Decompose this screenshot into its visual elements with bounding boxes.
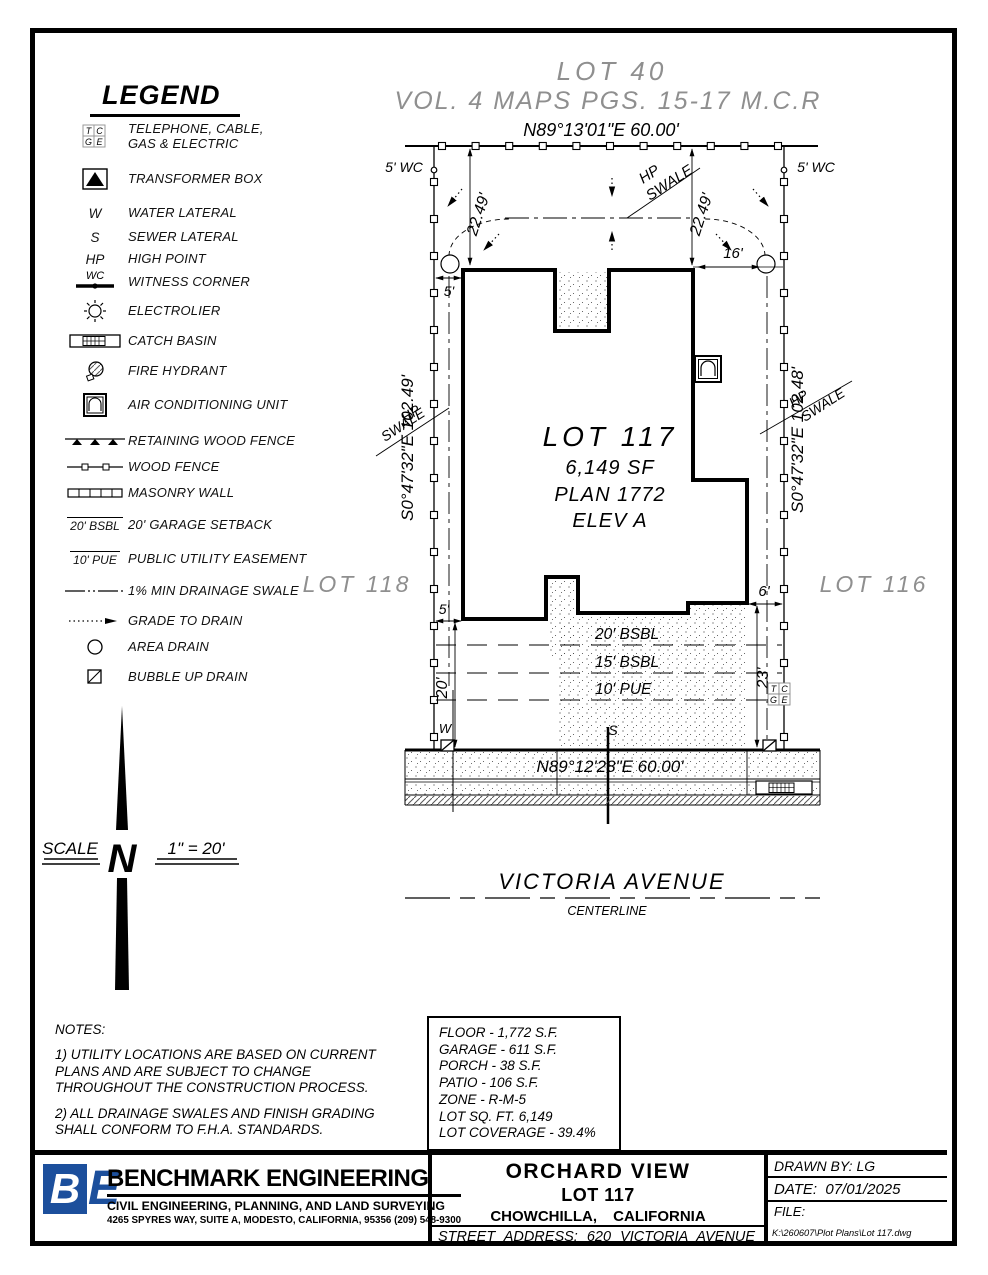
file-label: FILE: [774, 1204, 805, 1219]
retaining-wood-fence-icon [62, 435, 128, 447]
masonry-wall-icon [62, 487, 128, 499]
tcge-box-icon: TC GE [62, 124, 128, 150]
company-tagline: CIVIL ENGINEERING, PLANNING, AND LAND SU… [107, 1199, 461, 1213]
legend-item-pue: 10' PUE PUBLIC UTILITY EASEMENT [62, 546, 306, 572]
company-name: BENCHMARK ENGINEERING [107, 1165, 461, 1197]
water-symbol: W [89, 206, 102, 221]
logo-b-tile: B [43, 1164, 87, 1214]
legend-item-drainage-swale: 1% MIN DRAINAGE SWALE [62, 578, 299, 604]
bubble-up-drain-icon [62, 668, 128, 686]
table-row: PATIO - 106 S.F. [439, 1075, 609, 1092]
drawn-by-value: LG [856, 1158, 875, 1174]
note-2: 2) ALL DRAINAGE SWALES AND FINISH GRADIN… [55, 1106, 393, 1139]
ac-unit-icon [695, 356, 721, 382]
project-street-address: STREET ADDRESS: 620 VICTORIA AVENUE [432, 1225, 764, 1248]
legend-item-electrolier: ELECTROLIER [62, 298, 221, 324]
witness-corner-icon: WC [62, 269, 128, 295]
area-summary-table: FLOOR - 1,772 S.F. GARAGE - 611 S.F. POR… [427, 1016, 621, 1151]
bearing-top-label: N89°13'01"E 60.00' [523, 120, 679, 140]
lot-area-label: 6,149 SF [565, 457, 655, 479]
legend-item-water-lateral: W WATER LATERAL [62, 200, 237, 226]
wc-left-label: 5' WC [385, 159, 424, 175]
porch-area [547, 578, 576, 618]
dim-6-label: 6' [758, 583, 770, 600]
ac-unit-legend-icon [62, 392, 128, 418]
svg-text:T: T [86, 126, 93, 136]
title-block: B E BENCHMARK ENGINEERING CIVIL ENGINEER… [35, 1150, 947, 1241]
legend-item-ac-unit: AIR CONDITIONING UNIT [62, 392, 287, 418]
legend-title-underline [90, 114, 240, 117]
lot-number-label: LOT 117 [543, 421, 678, 452]
lot-elev-label: ELEV A [572, 510, 647, 532]
area-drain-right [757, 255, 775, 273]
wood-fence-icon [62, 462, 128, 472]
legend-title: LEGEND [102, 80, 221, 111]
svg-text:C: C [96, 126, 103, 136]
legend-item-witness-corner: WC WITNESS CORNER [62, 266, 250, 298]
legend-item-masonry-wall: MASONRY WALL [62, 480, 234, 506]
drawn-by-label: DRAWN BY: [774, 1158, 853, 1174]
date-value: 07/01/2025 [825, 1181, 900, 1198]
dim-5-bottom-label: 5' [439, 601, 451, 617]
plan-sheet: LOT 40 VOL. 4 MAPS PGS. 15-17 M.C.R N89°… [0, 0, 988, 1275]
drawn-by-row: DRAWN BY: LG [768, 1155, 947, 1178]
svg-text:G: G [770, 695, 777, 705]
legend-item-wood-fence: WOOD FENCE [62, 454, 220, 480]
bearing-left-label: S0°47'32"E 102.49' [398, 374, 417, 521]
table-row: LOT SQ. FT. 6,149 [439, 1109, 609, 1126]
legend-item-retaining-wood-fence: RETAINING WOOD FENCE [62, 428, 295, 454]
legend-item-garage-setback: 20' BSBL 20' GARAGE SETBACK [62, 512, 272, 538]
dim-16-label: 16' [723, 245, 744, 262]
dim-2249-left-label: 22.49' [464, 191, 494, 239]
fire-hydrant-icon [62, 359, 128, 383]
witness-corner-left [431, 167, 437, 173]
dim-2249-right-label: 22.49' [687, 191, 717, 239]
bearing-bottom-label: N89°12'28"E 60.00' [537, 757, 685, 776]
high-point-symbol: HP [86, 252, 105, 267]
electrolier-icon [62, 299, 128, 323]
bubble-up-drain-left [441, 740, 454, 751]
sewer-lateral-label: S [608, 722, 618, 738]
dim-5-top-label: 5' [444, 283, 456, 299]
title-block-project-panel: ORCHARD VIEW LOT 117 CHOWCHILLA, CALIFOR… [428, 1155, 768, 1241]
lot-right-label: LOT 116 [820, 571, 929, 597]
table-row: FLOOR - 1,772 S.F. [439, 1025, 609, 1042]
svg-text:G: G [85, 137, 92, 147]
legend-item-grade-to-drain: GRADE TO DRAIN [62, 608, 243, 634]
svg-text:E: E [781, 695, 788, 705]
title-block-info-panel: DRAWN BY: LG DATE: 07/01/2025 FILE: K:\2… [768, 1155, 947, 1241]
dim-20-label: 20' [434, 677, 451, 700]
setback-20-label: 20' BSBL [594, 626, 659, 643]
svg-text:E: E [96, 137, 103, 147]
bearing-right-label: S0°47'32"E 102.48' [788, 366, 807, 513]
centerline-label: CENTERLINE [567, 904, 647, 918]
date-row: DATE: 07/01/2025 [768, 1178, 947, 1202]
adjacent-lot-top-label: LOT 40 [557, 56, 668, 86]
project-name: ORCHARD VIEW [506, 1160, 691, 1184]
catch-basin-icon [62, 333, 128, 349]
witness-corner-right [781, 167, 787, 173]
lot-plan-label: PLAN 1772 [554, 484, 665, 506]
legend-item-transformer: TRANSFORMER BOX [62, 166, 262, 192]
project-city: CHOWCHILLA, CALIFORNIA [490, 1208, 705, 1225]
notes-title: NOTES: [55, 1022, 393, 1038]
wc-right-label: 5' WC [797, 159, 836, 175]
grade-to-drain-icon [62, 616, 128, 626]
svg-text:WC: WC [86, 270, 104, 282]
setback-15-label: 15' BSBL [595, 654, 659, 671]
company-address: 4265 SPYRES WAY, SUITE A, MODESTO, CALIF… [107, 1215, 461, 1226]
file-row: FILE: [768, 1202, 947, 1228]
table-row: GARAGE - 611 S.F. [439, 1042, 609, 1059]
area-drain-icon [62, 638, 128, 656]
title-block-company-panel: B E BENCHMARK ENGINEERING CIVIL ENGINEER… [35, 1155, 428, 1241]
note-1: 1) UTILITY LOCATIONS ARE BASED ON CURREN… [55, 1047, 393, 1096]
street-name-label: VICTORIA AVENUE [498, 869, 725, 894]
legend-item-tcge: TC GE TELEPHONE, CABLE, GAS & ELECTRIC [62, 124, 264, 150]
date-label: DATE: [774, 1181, 817, 1198]
sewer-symbol: S [90, 230, 99, 245]
map-reference-label: VOL. 4 MAPS PGS. 15-17 M.C.R [395, 87, 822, 115]
bsbl-symbol: 20' BSBL [67, 517, 123, 533]
table-row: PORCH - 38 S.F. [439, 1058, 609, 1075]
legend-item-catch-basin: CATCH BASIN [62, 328, 217, 354]
catch-basin [756, 781, 812, 794]
pue-10-label: 10' PUE [595, 681, 652, 698]
area-drain-left [441, 255, 459, 273]
pue-symbol: 10' PUE [70, 551, 120, 567]
file-path: K:\260607\Plot Plans\Lot 117.dwg [768, 1228, 947, 1241]
notes: NOTES: 1) UTILITY LOCATIONS ARE BASED ON… [55, 1022, 393, 1139]
water-lateral-label: W [439, 721, 453, 736]
table-row: LOT COVERAGE - 39.4% [439, 1125, 609, 1142]
grade-to-drain-arrows [448, 178, 768, 250]
bubble-up-drain-right [763, 740, 776, 751]
scale-value: 1" = 20' [167, 839, 225, 858]
svg-text:C: C [781, 684, 788, 694]
north-label: N [108, 837, 138, 881]
curb-band [405, 796, 820, 805]
legend-item-bubble-up-drain: BUBBLE UP DRAIN [62, 664, 248, 690]
project-lot: LOT 117 [561, 1185, 635, 1206]
transformer-box-icon [62, 168, 128, 190]
drainage-swale-icon [62, 588, 128, 594]
table-row: ZONE - R-M-5 [439, 1092, 609, 1109]
legend-item-fire-hydrant: FIRE HYDRANT [62, 358, 226, 384]
legend-item-area-drain: AREA DRAIN [62, 634, 209, 660]
patio-area [556, 272, 608, 330]
scale-label: SCALE [42, 839, 98, 858]
legend: TC GE TELEPHONE, CABLE, GAS & ELECTRIC T… [62, 120, 372, 700]
